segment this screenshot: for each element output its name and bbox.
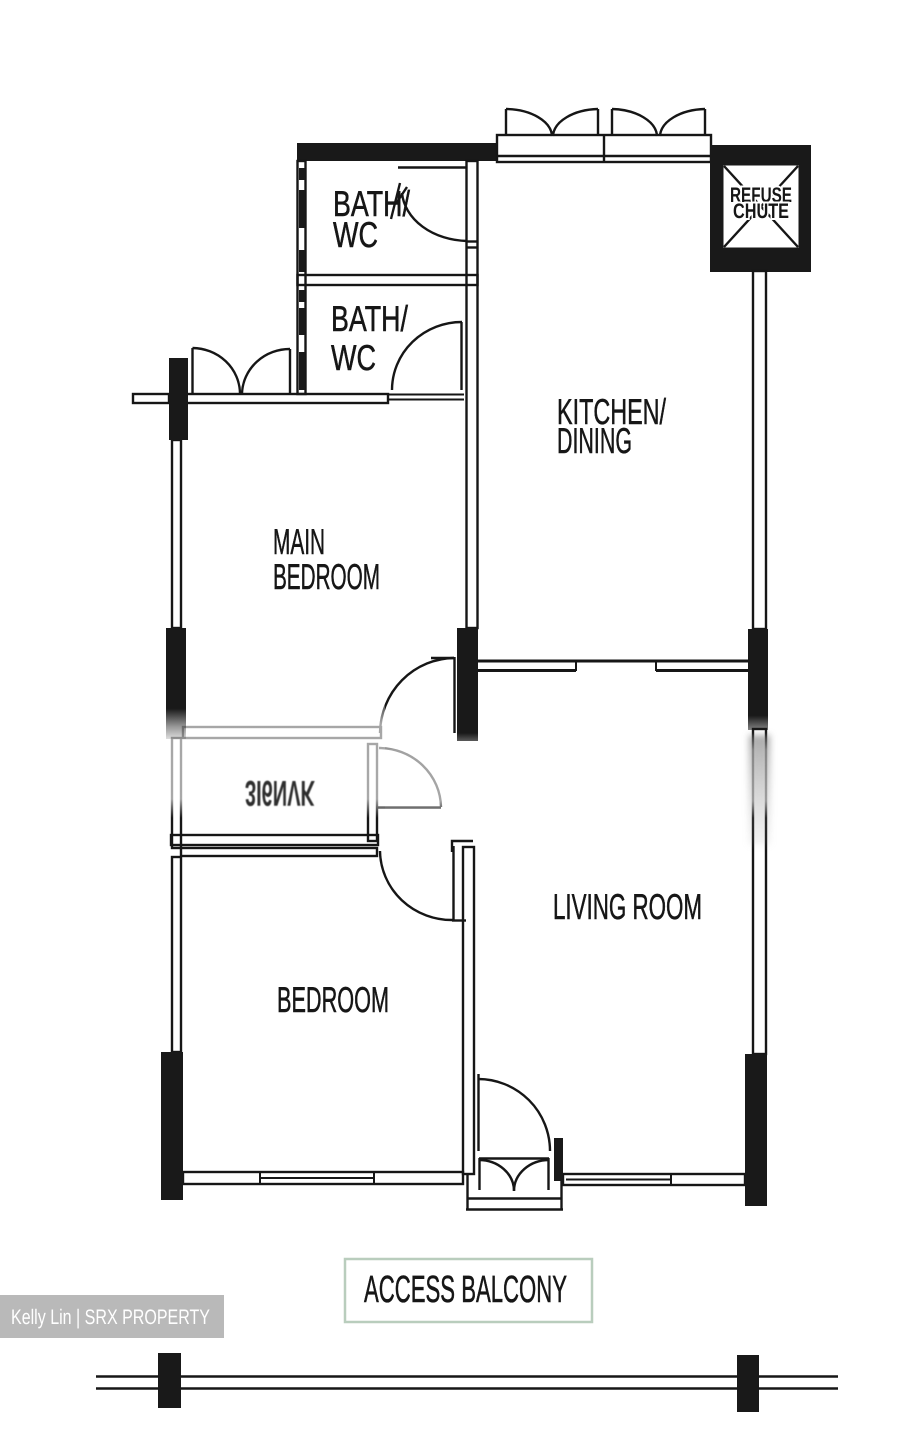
- svg-text:BEDROOM: BEDROOM: [277, 979, 389, 1020]
- svg-text:BEDROOM: BEDROOM: [273, 556, 380, 597]
- svg-text:LIVING ROOM: LIVING ROOM: [553, 886, 702, 927]
- svg-text:ACCESS BALCONY: ACCESS BALCONY: [364, 1269, 567, 1311]
- svg-text:3I6NVK: 3I6NVK: [245, 773, 315, 814]
- svg-text:WC: WC: [333, 214, 378, 255]
- svg-text:CHUTE: CHUTE: [733, 200, 789, 223]
- svg-text:WC: WC: [331, 337, 376, 378]
- svg-text:BATH/: BATH/: [331, 298, 408, 339]
- svg-text:DINING: DINING: [557, 420, 632, 461]
- svg-text:Kelly Lin | SRX PROPERTY: Kelly Lin | SRX PROPERTY: [11, 1306, 210, 1329]
